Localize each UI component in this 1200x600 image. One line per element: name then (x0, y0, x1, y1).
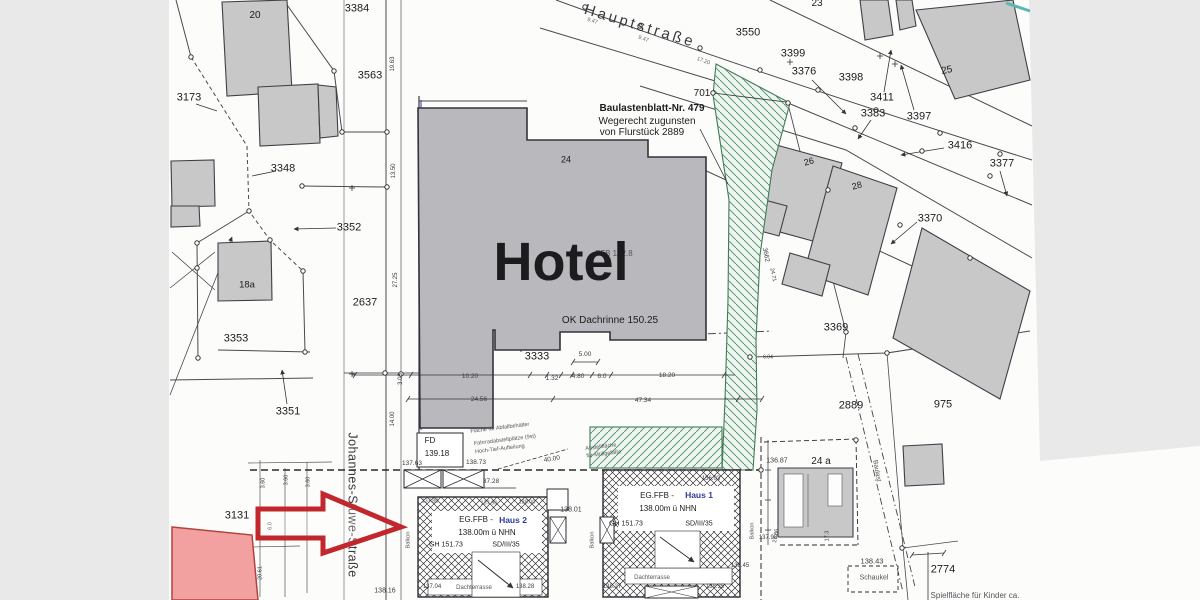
site-plan-canvas: HauptstraßeJohannes-Stuwe-Straße20338435… (0, 0, 1200, 600)
red-arrow-annotation (258, 494, 401, 553)
annotation-layer (0, 0, 1200, 600)
